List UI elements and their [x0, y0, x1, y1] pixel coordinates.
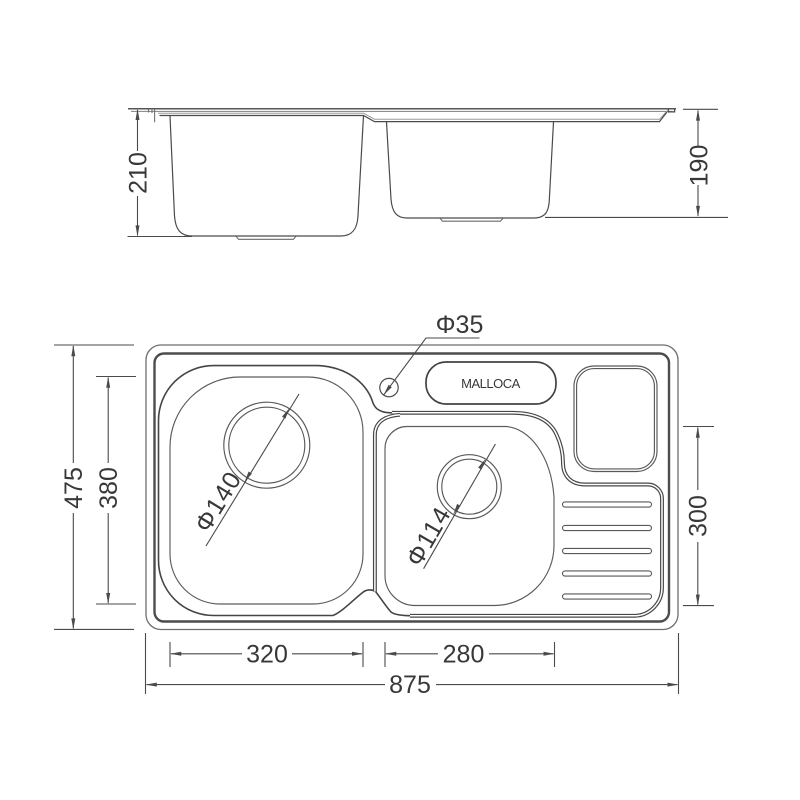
- svg-text:MALLOCA: MALLOCA: [461, 376, 520, 391]
- svg-text:875: 875: [389, 671, 431, 699]
- svg-text:Φ35: Φ35: [436, 311, 484, 339]
- svg-text:190: 190: [686, 145, 714, 187]
- svg-text:380: 380: [95, 467, 123, 509]
- svg-text:320: 320: [246, 640, 288, 668]
- svg-text:280: 280: [443, 640, 485, 668]
- svg-text:475: 475: [60, 467, 88, 509]
- svg-text:300: 300: [685, 495, 713, 537]
- svg-text:210: 210: [125, 152, 153, 194]
